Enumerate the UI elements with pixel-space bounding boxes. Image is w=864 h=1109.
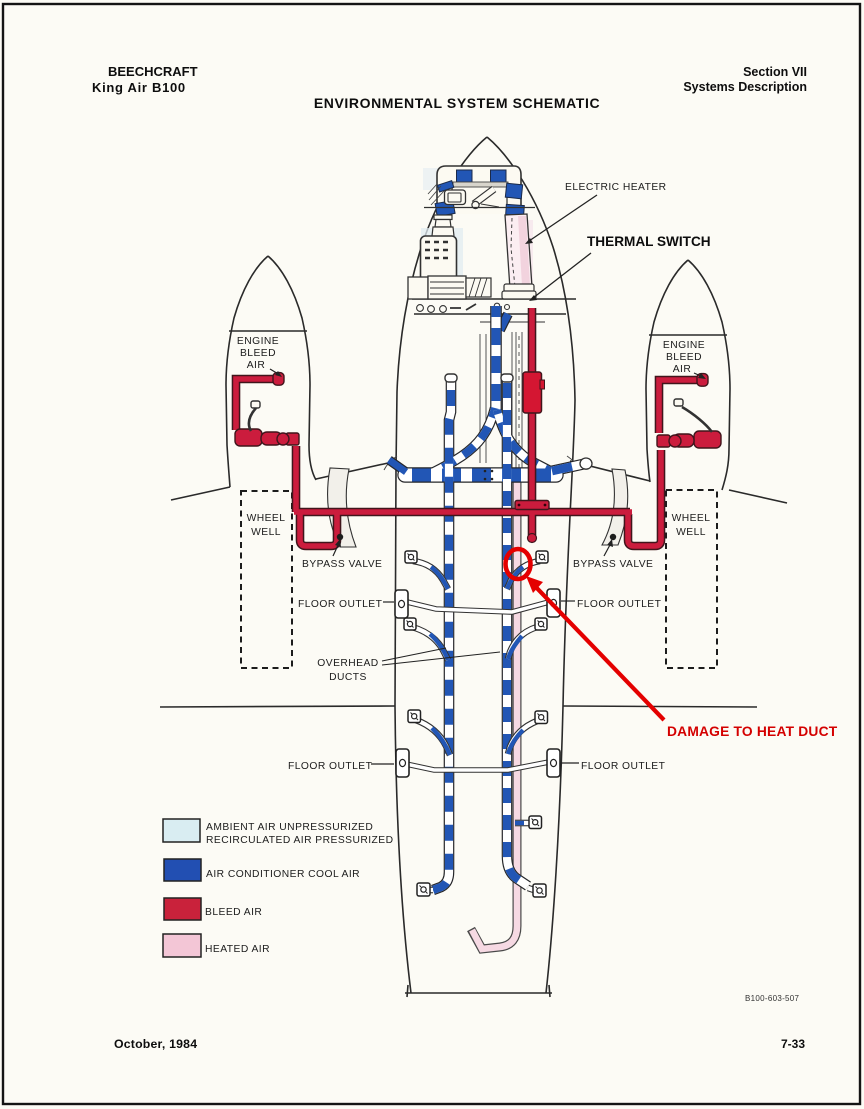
- svg-text:King Air B100: King Air B100: [92, 80, 186, 95]
- svg-text:Section VII: Section VII: [743, 65, 807, 79]
- svg-text:AMBIENT AIR UNPRESSURIZED: AMBIENT AIR UNPRESSURIZED: [206, 822, 373, 833]
- svg-text:FLOOR OUTLET: FLOOR OUTLET: [577, 599, 662, 610]
- svg-text:RECIRCULATED AIR PRESSURIZED: RECIRCULATED AIR PRESSURIZED: [206, 835, 394, 846]
- svg-text:WHEEL: WHEEL: [672, 513, 711, 524]
- svg-text:ELECTRIC HEATER: ELECTRIC HEATER: [565, 182, 667, 193]
- svg-text:DUCTS: DUCTS: [329, 672, 367, 683]
- svg-text:ENVIRONMENTAL SYSTEM SCHEMATIC: ENVIRONMENTAL SYSTEM SCHEMATIC: [314, 95, 600, 111]
- svg-text:AIR CONDITIONER COOL AIR: AIR CONDITIONER COOL AIR: [206, 869, 360, 880]
- svg-text:FLOOR OUTLET: FLOOR OUTLET: [288, 761, 373, 772]
- svg-text:October, 1984: October, 1984: [114, 1037, 197, 1051]
- svg-text:FLOOR OUTLET: FLOOR OUTLET: [581, 761, 666, 772]
- svg-text:THERMAL SWITCH: THERMAL SWITCH: [587, 234, 711, 249]
- svg-text:BLEED: BLEED: [666, 352, 702, 363]
- svg-text:WELL: WELL: [676, 527, 706, 538]
- svg-text:Systems Description: Systems Description: [683, 80, 807, 94]
- svg-text:AIR: AIR: [247, 360, 266, 371]
- svg-text:BYPASS VALVE: BYPASS VALVE: [302, 559, 382, 570]
- svg-text:ENGINE: ENGINE: [237, 336, 279, 347]
- svg-text:BLEED AIR: BLEED AIR: [205, 907, 262, 918]
- svg-text:WELL: WELL: [251, 527, 281, 538]
- svg-text:B100-603-507: B100-603-507: [745, 994, 800, 1003]
- svg-text:BEECHCRAFT: BEECHCRAFT: [108, 64, 198, 79]
- svg-text:HEATED AIR: HEATED AIR: [205, 944, 270, 955]
- svg-text:AIR: AIR: [673, 364, 692, 375]
- svg-text:DAMAGE TO HEAT DUCT: DAMAGE TO HEAT DUCT: [667, 724, 838, 739]
- svg-text:FLOOR OUTLET: FLOOR OUTLET: [298, 599, 383, 610]
- svg-text:WHEEL: WHEEL: [247, 513, 286, 524]
- svg-text:OVERHEAD: OVERHEAD: [317, 658, 378, 669]
- svg-text:BYPASS VALVE: BYPASS VALVE: [573, 559, 653, 570]
- svg-text:ENGINE: ENGINE: [663, 340, 705, 351]
- svg-text:BLEED: BLEED: [240, 348, 276, 359]
- svg-text:7-33: 7-33: [781, 1037, 805, 1051]
